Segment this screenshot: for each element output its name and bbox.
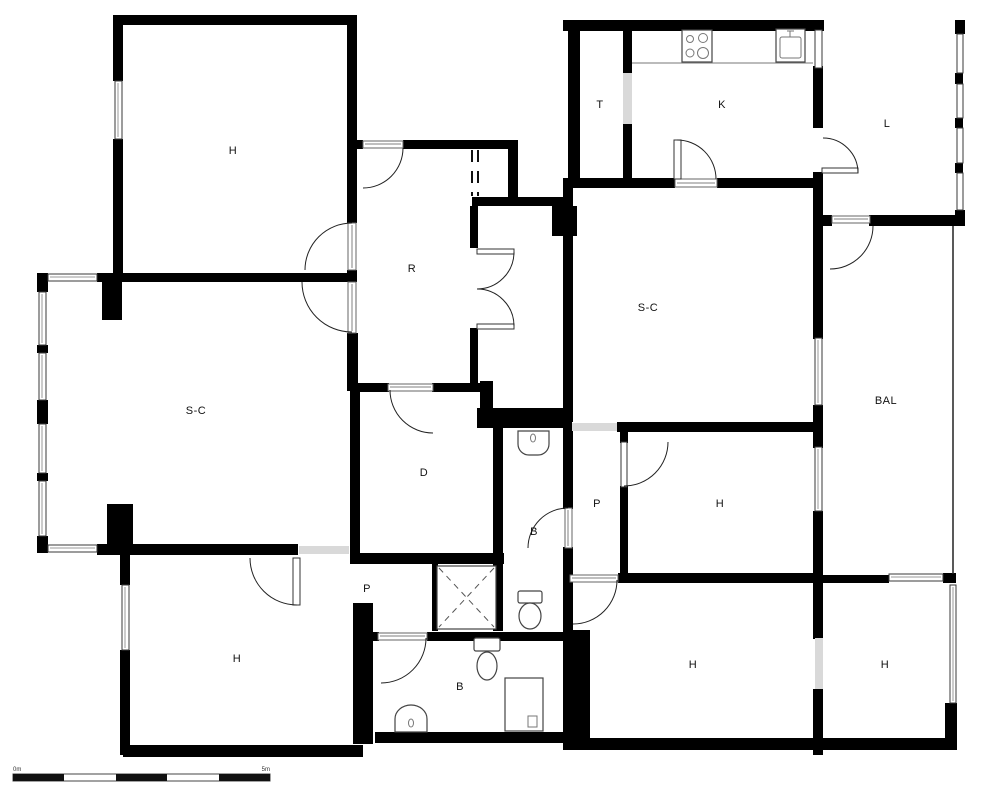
floor-plan-canvas: H T K L R S-C S-C BAL D P H B P H B H H … [0, 0, 1000, 800]
shower-tray-icon [505, 678, 543, 731]
toilet-icon-2 [474, 638, 500, 680]
stove-icon [682, 30, 712, 62]
room-label-laundry-top-right: L [884, 118, 891, 130]
room-label-bedroom-bottom-right: H [881, 659, 889, 671]
room-label-living-left: S-C [186, 405, 206, 417]
scale-bar: 0m 5m [13, 767, 270, 781]
room-label-pantry-top: T [596, 99, 603, 111]
room-label-balcony: BAL [875, 395, 897, 407]
scale-start-label: 0m [13, 767, 21, 773]
room-label-bedroom-bottom-left: H [233, 653, 241, 665]
room-label-bedroom-mid-right: H [716, 498, 724, 510]
washbasin-icon-2 [395, 705, 427, 732]
room-label-dressing: D [420, 467, 428, 479]
walls [37, 15, 965, 757]
room-label-passage-left: P [363, 583, 371, 595]
floor-plan: H T K L R S-C S-C BAL D P H B P H B H H … [0, 0, 1000, 800]
room-labels: H T K L R S-C S-C BAL D P H B P H B H H [186, 99, 897, 693]
room-label-bathroom-center: B [530, 526, 538, 538]
room-label-living-right: S-C [638, 302, 658, 314]
room-label-passage-right: P [593, 498, 601, 510]
kitchen-sink-icon [776, 29, 805, 62]
toilet-icon [518, 591, 542, 629]
washbasin-icon [518, 431, 549, 455]
room-label-bedroom-top-left: H [229, 145, 237, 157]
fixtures [395, 29, 813, 732]
wall-openings [299, 73, 823, 689]
dashed-opening [472, 150, 478, 196]
room-label-bedroom-bottom-center: H [689, 659, 697, 671]
scale-end-label: 5m [262, 767, 270, 773]
room-label-bathroom-bottom: B [456, 681, 464, 693]
shower-icon [437, 566, 496, 629]
room-label-hall-corridor: R [408, 263, 416, 275]
room-label-kitchen: K [718, 99, 726, 111]
